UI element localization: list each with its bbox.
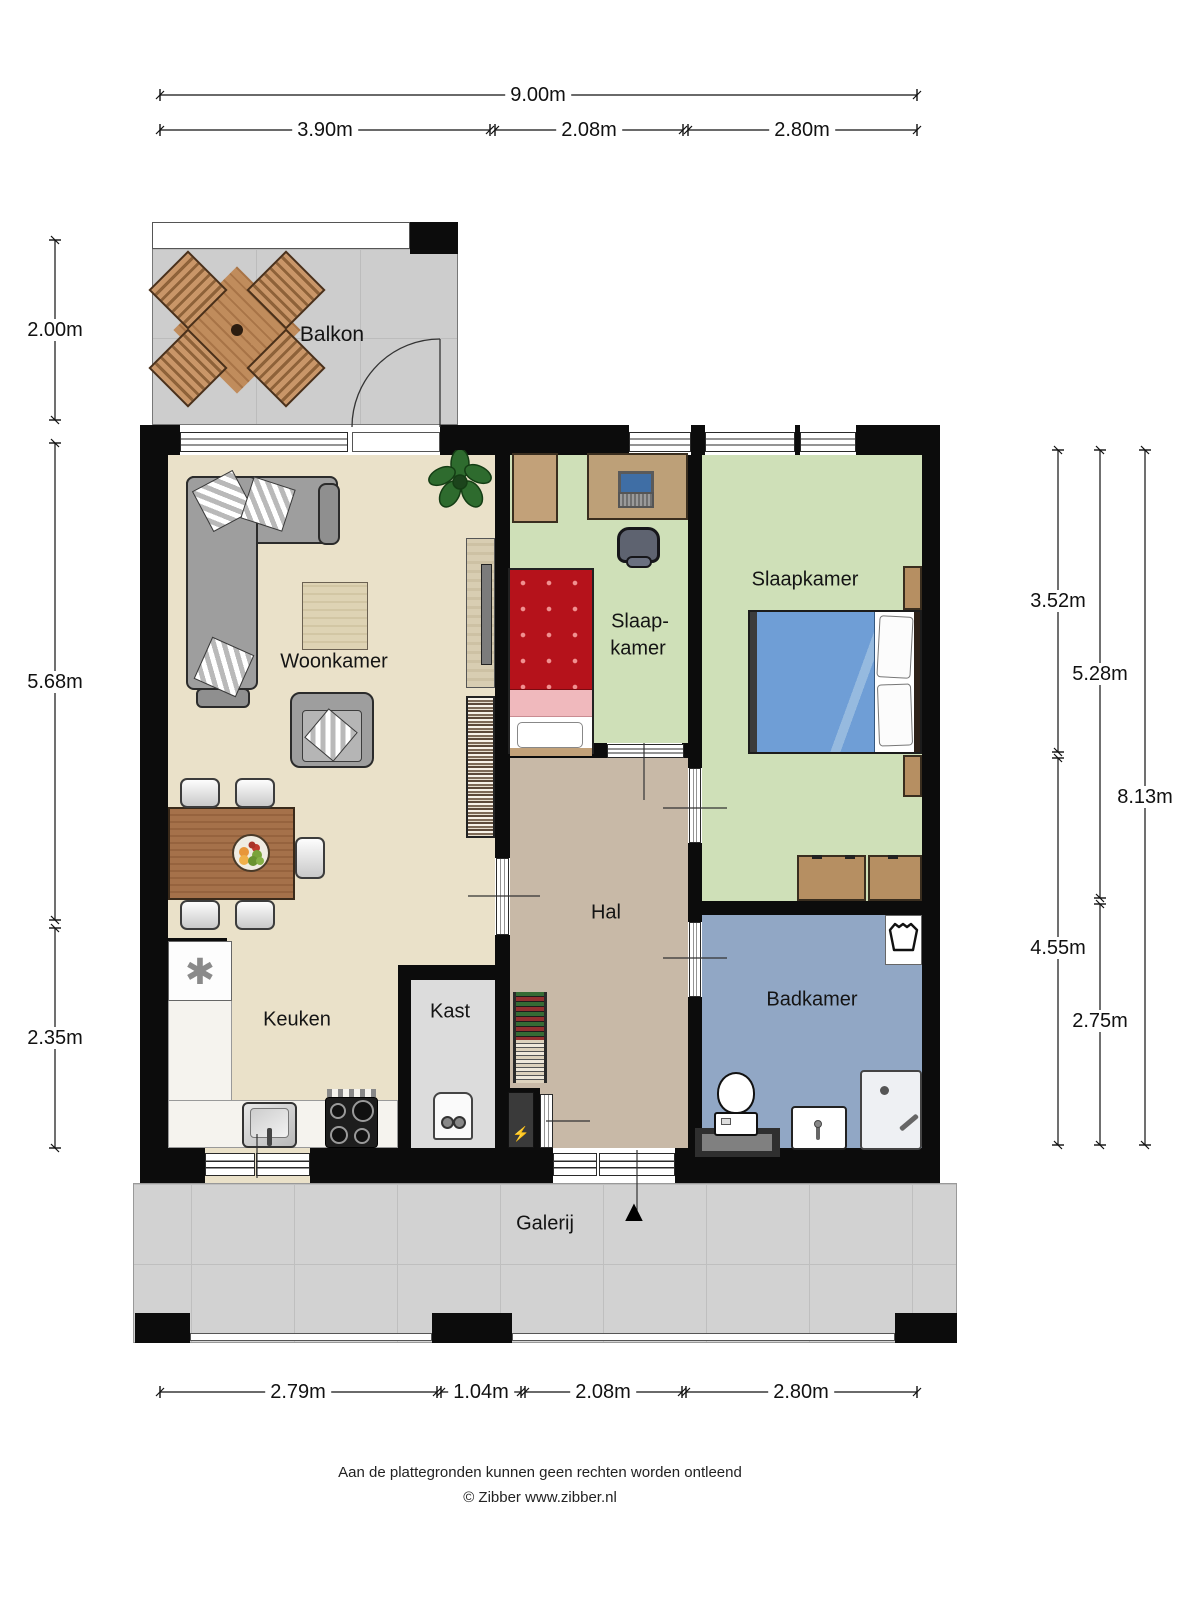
kitchen-faucet bbox=[267, 1128, 272, 1146]
door-woonkamer-hal bbox=[496, 858, 509, 935]
room-label-slaapkamer-klein-2: kamer bbox=[610, 638, 666, 661]
nightstand-1 bbox=[903, 566, 922, 610]
rug bbox=[302, 582, 368, 650]
front-door-sidelight bbox=[553, 1153, 597, 1176]
front-door bbox=[599, 1153, 675, 1176]
footer-disclaimer: Aan de plattegronden kunnen geen rechten… bbox=[338, 1464, 742, 1481]
balkon-door-opening bbox=[352, 432, 440, 452]
dim-bottom-2: 1.04m bbox=[448, 1381, 514, 1403]
galerij-railing-2 bbox=[512, 1333, 895, 1341]
room-label-badkamer: Badkamer bbox=[766, 989, 857, 1012]
wardrobe bbox=[512, 453, 558, 523]
bathroom-sink-knob bbox=[814, 1120, 822, 1128]
keuken-window-2 bbox=[256, 1153, 310, 1176]
room-label-galerij: Galerij bbox=[516, 1213, 574, 1236]
shower bbox=[860, 1070, 922, 1150]
galerij-railing-1 bbox=[190, 1333, 432, 1341]
dining-chair-5 bbox=[295, 837, 325, 879]
washing-machine bbox=[885, 915, 922, 965]
wall-top-1 bbox=[140, 425, 180, 455]
dresser-1 bbox=[797, 855, 866, 901]
balkon-wall-block bbox=[410, 222, 458, 254]
dim-right-a2: 4.55m bbox=[1025, 937, 1091, 959]
door-slaapkamer-klein bbox=[607, 744, 684, 758]
balcony-table-center bbox=[231, 324, 243, 336]
laptop-keyboard bbox=[618, 492, 654, 508]
lightning-icon: ⚡ bbox=[512, 1126, 529, 1143]
room-label-keuken: Keuken bbox=[263, 1009, 331, 1032]
double-bed-footboard bbox=[750, 612, 757, 752]
dim-top-3: 2.80m bbox=[769, 119, 835, 141]
dim-left-2: 5.68m bbox=[22, 671, 88, 693]
balkon-railing bbox=[152, 222, 410, 249]
room-label-woonkamer: Woonkamer bbox=[280, 651, 387, 674]
nightstand-2 bbox=[903, 755, 922, 797]
wall-kast-left bbox=[398, 980, 411, 1183]
dim-bottom-3: 2.08m bbox=[570, 1381, 636, 1403]
dining-chair-3 bbox=[180, 900, 220, 930]
room-label-slaapkamer-klein-1: Slaap- bbox=[611, 611, 669, 634]
boiler-motor-2 bbox=[453, 1116, 466, 1129]
dresser-2 bbox=[868, 855, 922, 901]
room-label-balkon: Balkon bbox=[300, 323, 364, 347]
desk-chair-seat bbox=[626, 556, 652, 568]
stove-knobs bbox=[327, 1089, 376, 1097]
dim-right-c: 8.13m bbox=[1112, 786, 1178, 808]
dresser-handle-3 bbox=[888, 855, 898, 859]
tv bbox=[481, 564, 492, 665]
floor-plan-canvas: ▲ ✱ bbox=[0, 0, 1200, 1600]
wall-top-3 bbox=[691, 425, 705, 455]
single-bed-pillow bbox=[517, 722, 583, 748]
dim-right-b2: 2.75m bbox=[1067, 1010, 1133, 1032]
double-bed bbox=[748, 610, 922, 754]
galerij-pillar-3 bbox=[895, 1313, 957, 1343]
galerij-pillar-2 bbox=[432, 1313, 512, 1343]
double-bed-headboard bbox=[914, 612, 920, 752]
single-bed-base bbox=[510, 748, 592, 756]
dining-chair-2 bbox=[235, 778, 275, 808]
wall-right bbox=[922, 425, 940, 1183]
stove-burner-3 bbox=[330, 1126, 348, 1144]
stove-burner-4 bbox=[354, 1128, 370, 1144]
room-label-hal: Hal bbox=[591, 902, 621, 925]
dim-left-3: 2.35m bbox=[22, 1027, 88, 1049]
wall-mid-vertical-upper bbox=[688, 455, 702, 768]
wall-top-4 bbox=[856, 425, 940, 455]
wall-top-2 bbox=[440, 425, 629, 455]
dim-top-1: 3.90m bbox=[292, 119, 358, 141]
room-label-kast: Kast bbox=[430, 1001, 470, 1024]
wall-kast-top bbox=[398, 965, 510, 980]
double-bed-pillow-2 bbox=[877, 683, 913, 746]
boiler bbox=[433, 1092, 473, 1140]
dim-top-total: 9.00m bbox=[505, 84, 571, 106]
single-bed-duvet bbox=[510, 570, 592, 690]
footer-copyright: © Zibber www.zibber.nl bbox=[463, 1489, 617, 1506]
wall-left bbox=[140, 425, 168, 1183]
keuken-window-1 bbox=[205, 1153, 255, 1176]
coat-rack-upper bbox=[513, 992, 547, 1040]
slaapkamer-window-2 bbox=[800, 432, 856, 452]
door-meterkast bbox=[540, 1094, 553, 1148]
galerij-pillar-1 bbox=[135, 1313, 190, 1343]
door-hal-badkamer bbox=[689, 922, 701, 997]
laundry-icon bbox=[886, 916, 921, 962]
dining-chair-1 bbox=[180, 778, 220, 808]
dim-bottom-4: 2.80m bbox=[768, 1381, 834, 1403]
single-bed bbox=[508, 568, 594, 754]
double-bed-pillow-1 bbox=[876, 615, 913, 679]
dim-top-2: 2.08m bbox=[556, 119, 622, 141]
bookshelf bbox=[466, 696, 495, 838]
laptop-screen bbox=[618, 471, 654, 492]
dresser-handle-1 bbox=[812, 855, 822, 859]
stove-burner-2 bbox=[352, 1100, 374, 1122]
dim-bottom-1: 2.79m bbox=[265, 1381, 331, 1403]
toilet-bowl bbox=[717, 1072, 755, 1114]
slaapkamer-window-1 bbox=[705, 432, 795, 452]
shower-drain bbox=[880, 1086, 889, 1095]
balkon-window bbox=[180, 432, 348, 452]
slaapkamer-klein-window bbox=[629, 432, 691, 452]
dim-right-b1: 5.28m bbox=[1067, 663, 1133, 685]
wall-slaapkamer-badkamer bbox=[688, 901, 922, 915]
single-bed-blanket bbox=[510, 690, 592, 717]
entrance-arrow-icon: ▲ bbox=[619, 1195, 649, 1229]
wall-bottom-1 bbox=[140, 1148, 205, 1183]
bathroom-counter-inner bbox=[702, 1134, 772, 1151]
double-bed-duvet bbox=[757, 612, 875, 752]
dim-right-a1: 3.52m bbox=[1025, 590, 1091, 612]
dining-table bbox=[168, 807, 295, 900]
room-label-slaapkamer: Slaapkamer bbox=[752, 569, 859, 592]
dim-left-1: 2.00m bbox=[22, 319, 88, 341]
dresser-handle-2 bbox=[845, 855, 855, 859]
frost-icon: ✱ bbox=[185, 951, 215, 993]
coat-rack-lower bbox=[513, 1040, 547, 1083]
sofa-armrest bbox=[318, 483, 340, 545]
door-hal-slaapkamer bbox=[689, 768, 701, 843]
galerij-floor bbox=[133, 1183, 957, 1343]
wall-bottom-2 bbox=[310, 1148, 553, 1183]
toilet-button bbox=[721, 1118, 731, 1125]
dining-chair-4 bbox=[235, 900, 275, 930]
stove-burner-1 bbox=[330, 1103, 346, 1119]
